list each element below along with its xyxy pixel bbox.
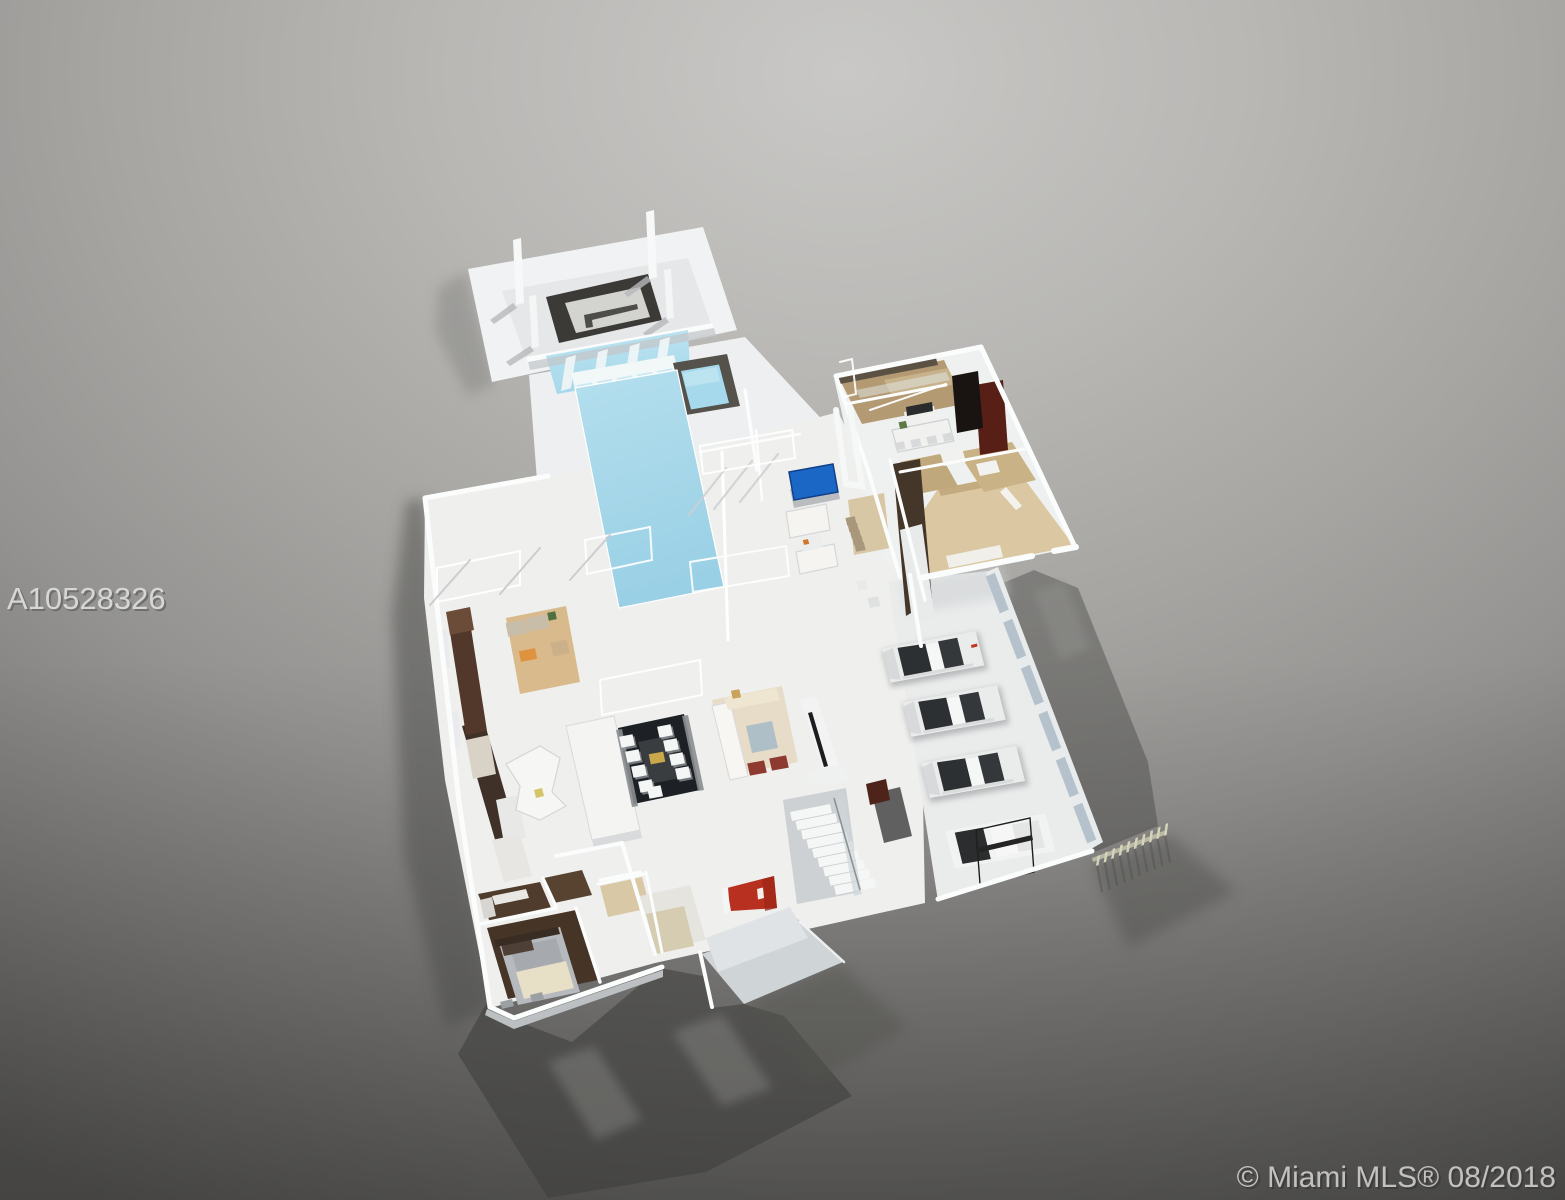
svg-text:A10528326: A10528326 [7, 581, 166, 616]
svg-text:© Miami MLS® 08/2018: © Miami MLS® 08/2018 [1237, 1161, 1556, 1194]
